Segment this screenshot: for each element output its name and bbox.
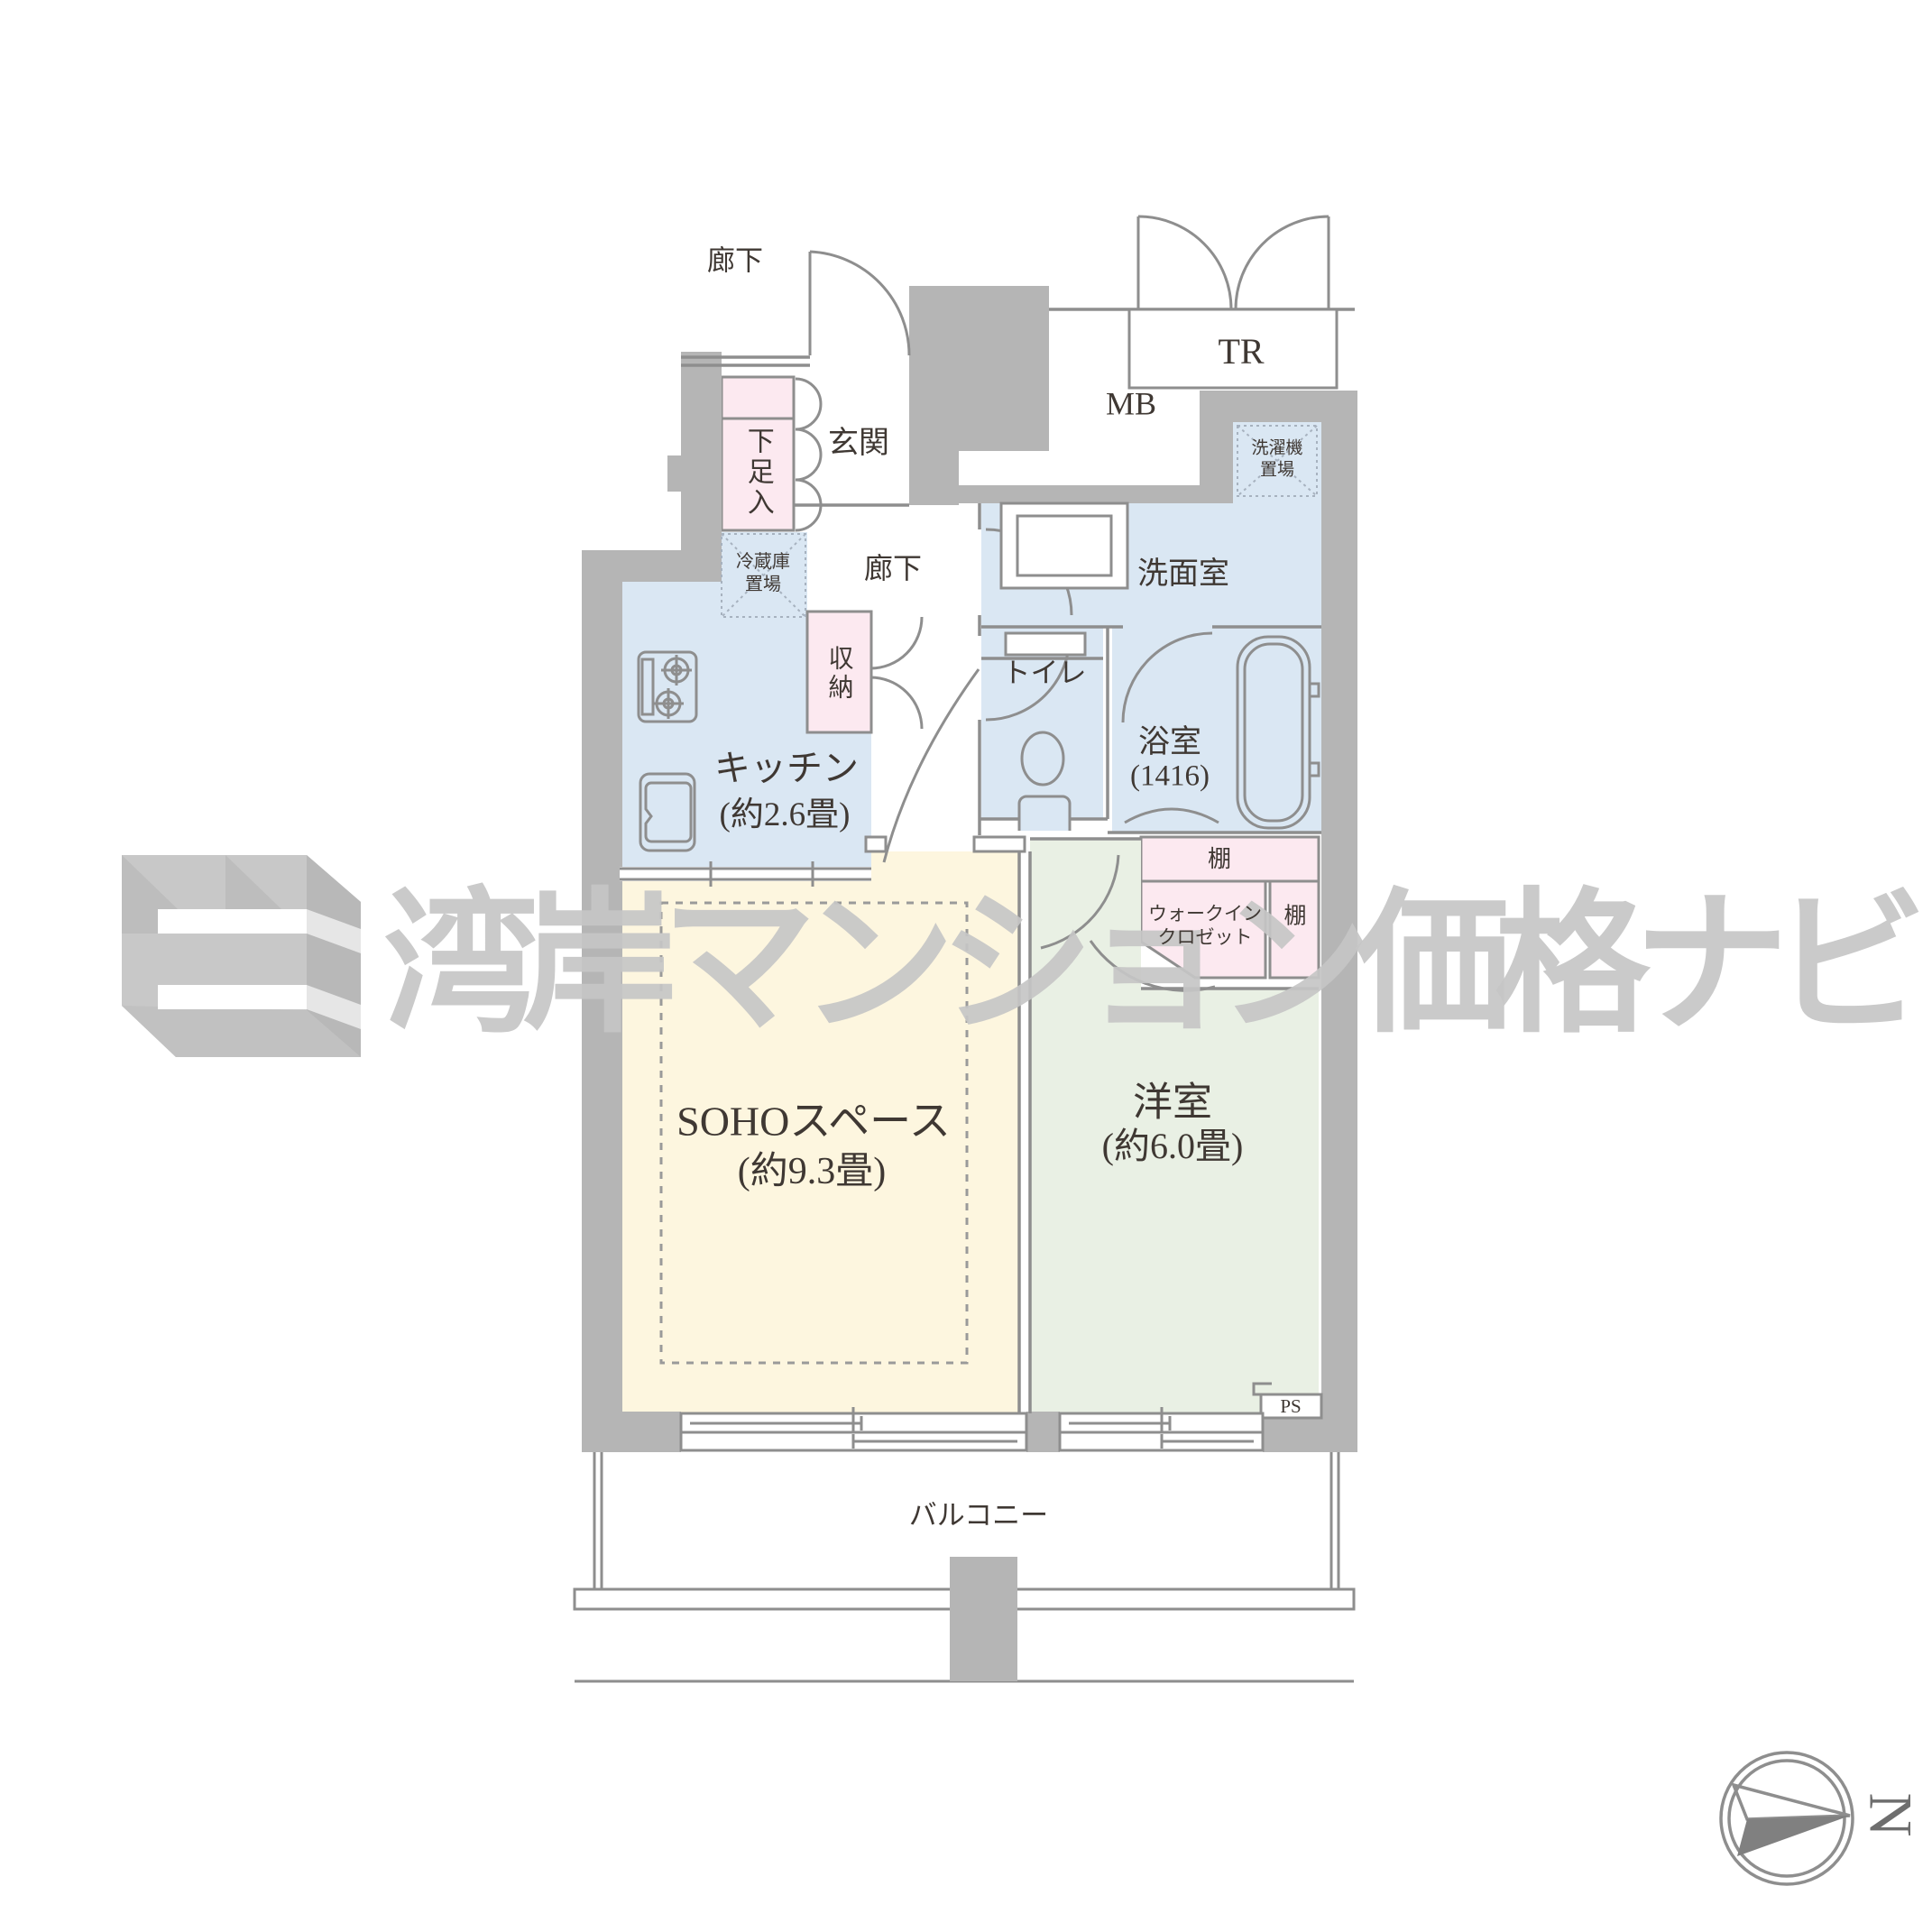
windows xyxy=(681,1407,1263,1450)
shoe-cabinet-doors xyxy=(796,379,821,530)
label-kitchen-name: キッチン xyxy=(714,746,859,791)
label-entrance: 玄関 xyxy=(828,425,889,464)
label-washer-space: 洗濯機 置場 xyxy=(1251,437,1302,481)
label-corridor-top: 廊下 xyxy=(707,244,763,280)
wall-bottom-left xyxy=(582,1412,681,1452)
shoe-cabinet-fill-upper xyxy=(722,377,794,419)
toilet-base-icon xyxy=(1019,796,1070,831)
label-washer-line2: 置場 xyxy=(1251,459,1302,481)
compass-needle-outline xyxy=(1734,1785,1850,1819)
wall-left-bump xyxy=(667,455,682,492)
label-fridge-line2: 置場 xyxy=(736,574,790,596)
label-corridor-inner: 廊下 xyxy=(864,550,922,586)
label-fridge-line1: 冷蔵庫 xyxy=(736,551,790,574)
label-fridge-space: 冷蔵庫 置場 xyxy=(736,551,790,596)
toilet-bowl-icon xyxy=(1022,732,1063,785)
wall-entrance-right-block xyxy=(909,286,1049,451)
label-washroom: 洗面室 xyxy=(1137,556,1229,594)
label-meter-box: MB xyxy=(1106,384,1156,425)
wall-mb-bottom-band xyxy=(909,485,1233,503)
label-soho-name: SOHOスペース xyxy=(676,1095,951,1147)
storage-bifold-arc-upper xyxy=(870,617,922,668)
label-wic-line2: クロゼット xyxy=(1148,925,1262,949)
toilet-tank-icon xyxy=(1006,633,1085,655)
balcony-divider-front xyxy=(950,1557,1017,1681)
label-wic-line1: ウォークイン xyxy=(1148,902,1262,925)
soho-door-arc xyxy=(884,669,979,862)
label-shoe-cabinet: 下足入 xyxy=(741,427,775,519)
watermark-text: 湾岸マンション価格ナビ xyxy=(383,837,1911,1063)
window-soho xyxy=(681,1407,1026,1450)
wall-washer-left-stub xyxy=(1200,422,1233,503)
label-ps: PS xyxy=(1280,1394,1301,1418)
label-shelf-side: 棚 xyxy=(1283,902,1306,930)
label-bath-size: (1416) xyxy=(1130,758,1210,795)
label-western-size: (約6.0畳) xyxy=(1102,1124,1244,1169)
wall-bottom-mid xyxy=(1026,1412,1060,1452)
tr-door-arc-left xyxy=(1138,216,1231,309)
floorplan-stage: 湾岸マンション価格ナビ 廊下 玄関 下足入 TR MB 廊下 冷蔵庫 置場 収納… xyxy=(0,0,1932,1932)
label-western-name: 洋室 xyxy=(1133,1078,1212,1127)
compass-icon xyxy=(1721,1753,1853,1884)
tr-door-arc-right xyxy=(1236,216,1329,309)
label-toilet: トイレ xyxy=(1003,657,1087,692)
compass-north-label: N xyxy=(1855,1792,1927,1836)
label-wic: ウォークイン クロゼット xyxy=(1148,902,1262,950)
label-storage: 収納 xyxy=(823,645,855,703)
label-kitchen-size: (約2.6畳) xyxy=(720,795,851,836)
wall-upper-left xyxy=(681,352,722,582)
watermark-logo-icon xyxy=(122,855,361,1057)
storage-bifold-arc-lower xyxy=(870,677,922,729)
entry-door-arc xyxy=(810,252,909,355)
label-soho-size: (約9.3畳) xyxy=(738,1148,886,1196)
label-balcony: バルコニー xyxy=(909,1499,1048,1534)
label-bath-name: 浴室 xyxy=(1138,722,1201,762)
label-trunk-room: TR xyxy=(1218,329,1264,374)
label-shelf-top: 棚 xyxy=(1208,845,1231,875)
wall-left-step xyxy=(582,550,722,582)
label-washer-line1: 洗濯機 xyxy=(1251,437,1302,459)
compass-needle-fill xyxy=(1737,1816,1850,1856)
window-western xyxy=(1060,1407,1263,1450)
